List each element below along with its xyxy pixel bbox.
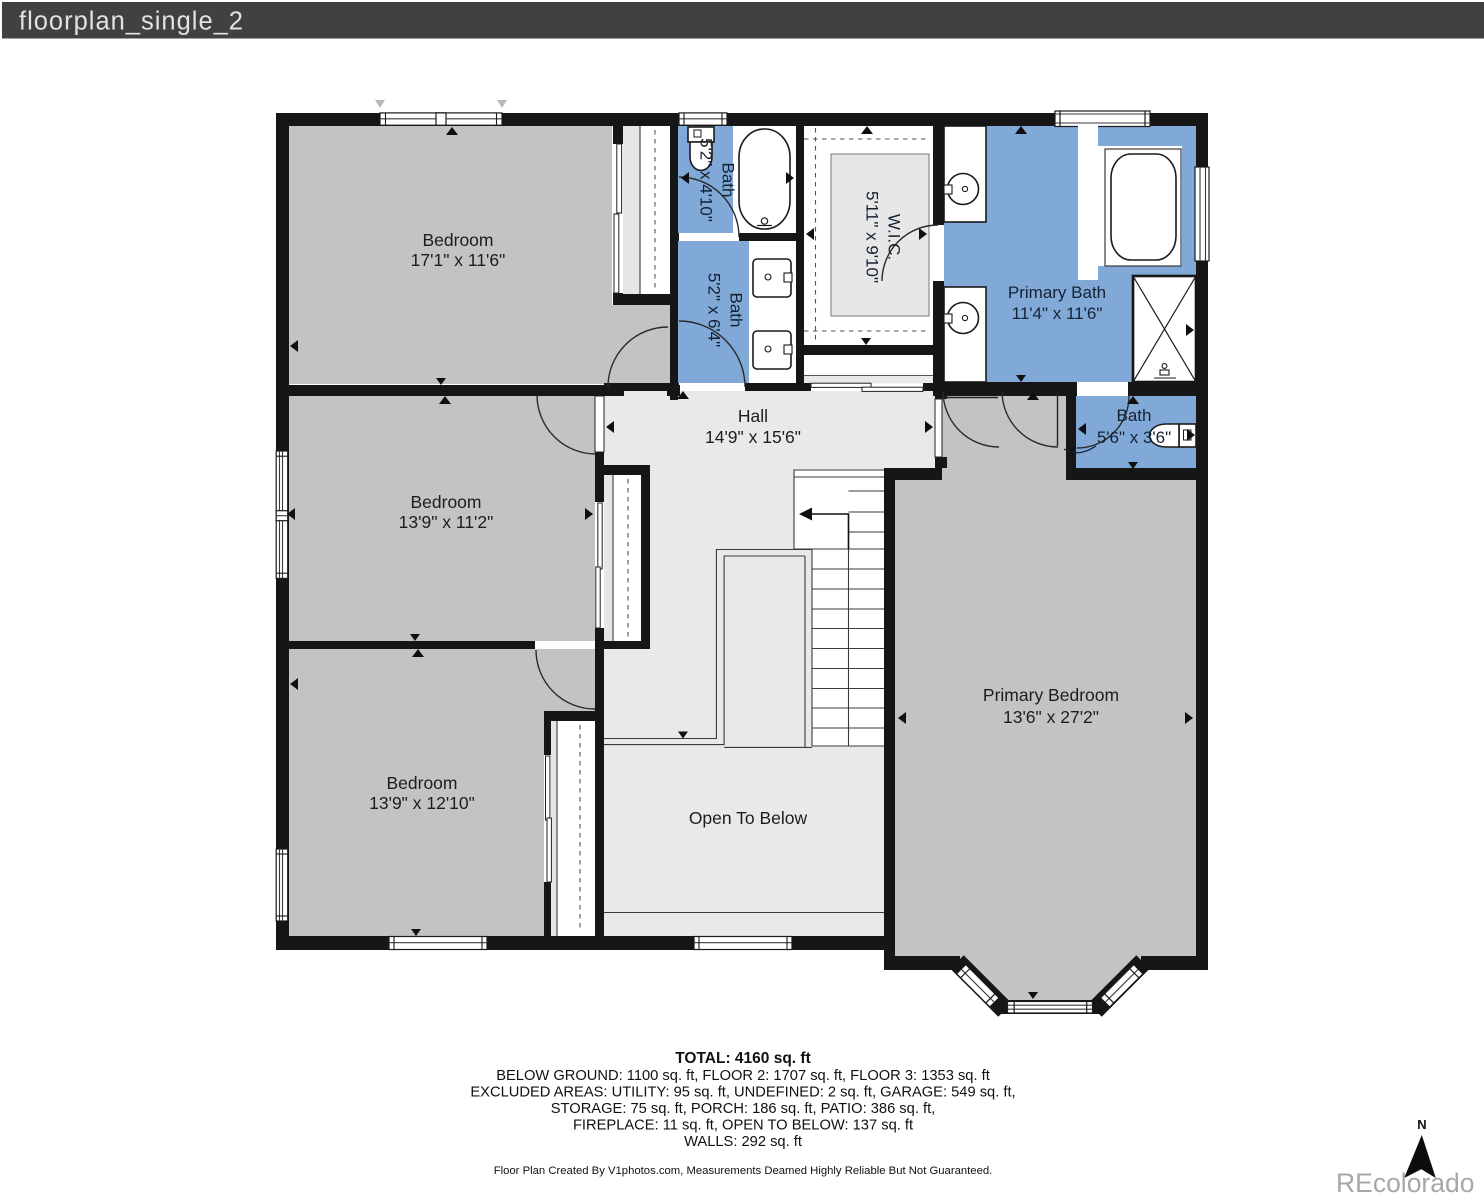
- svg-text:N: N: [1417, 1117, 1426, 1132]
- svg-text:WALLS: 292 sq. ft: WALLS: 292 sq. ft: [684, 1134, 802, 1150]
- svg-text:13'9" x 12'10": 13'9" x 12'10": [369, 793, 475, 813]
- svg-text:14'9" x 15'6": 14'9" x 15'6": [705, 427, 801, 447]
- svg-text:5'11" x 9'10": 5'11" x 9'10": [863, 191, 882, 283]
- svg-text:FIREPLACE: 11 sq. ft, OPEN TO: FIREPLACE: 11 sq. ft, OPEN TO BELOW: 137…: [573, 1118, 913, 1134]
- svg-text:13'9" x 11'2": 13'9" x 11'2": [399, 512, 494, 532]
- svg-text:Primary Bedroom: Primary Bedroom: [983, 685, 1119, 705]
- svg-text:floorplan_single_2: floorplan_single_2: [19, 8, 244, 36]
- svg-text:Bedroom: Bedroom: [410, 492, 481, 512]
- svg-text:W.I.C.: W.I.C.: [885, 214, 904, 260]
- svg-text:REcolorado: REcolorado: [1336, 1168, 1474, 1198]
- svg-text:Bath: Bath: [1117, 406, 1152, 425]
- svg-text:TOTAL: 4160 sq. ft: TOTAL: 4160 sq. ft: [675, 1050, 811, 1067]
- svg-text:17'1" x 11'6": 17'1" x 11'6": [411, 250, 506, 270]
- svg-text:Primary Bath: Primary Bath: [1008, 283, 1106, 302]
- svg-text:Bedroom: Bedroom: [422, 230, 493, 250]
- svg-text:STORAGE: 75 sq. ft, PORCH: 186: STORAGE: 75 sq. ft, PORCH: 186 sq. ft, P…: [551, 1101, 935, 1117]
- svg-text:Open To Below: Open To Below: [689, 808, 808, 828]
- svg-text:Bedroom: Bedroom: [386, 773, 457, 793]
- svg-text:Bath: Bath: [727, 293, 746, 328]
- svg-text:BELOW GROUND: 1100 sq. ft, FLO: BELOW GROUND: 1100 sq. ft, FLOOR 2: 1707…: [496, 1068, 990, 1084]
- svg-text:Floor Plan Created By V1photos: Floor Plan Created By V1photos.com, Meas…: [494, 1165, 993, 1177]
- svg-text:EXCLUDED AREAS: UTILITY: 95 sq: EXCLUDED AREAS: UTILITY: 95 sq. ft, UNDE…: [470, 1085, 1015, 1101]
- svg-text:5'2" x 6'4": 5'2" x 6'4": [705, 273, 724, 347]
- svg-text:5'2" x 4'10": 5'2" x 4'10": [697, 138, 716, 222]
- svg-text:11'4" x 11'6": 11'4" x 11'6": [1012, 304, 1103, 323]
- svg-text:5'6" x 3'6": 5'6" x 3'6": [1097, 428, 1171, 447]
- svg-text:Hall: Hall: [738, 406, 768, 426]
- svg-text:Bath: Bath: [719, 163, 738, 198]
- svg-text:13'6" x 27'2": 13'6" x 27'2": [1003, 707, 1099, 727]
